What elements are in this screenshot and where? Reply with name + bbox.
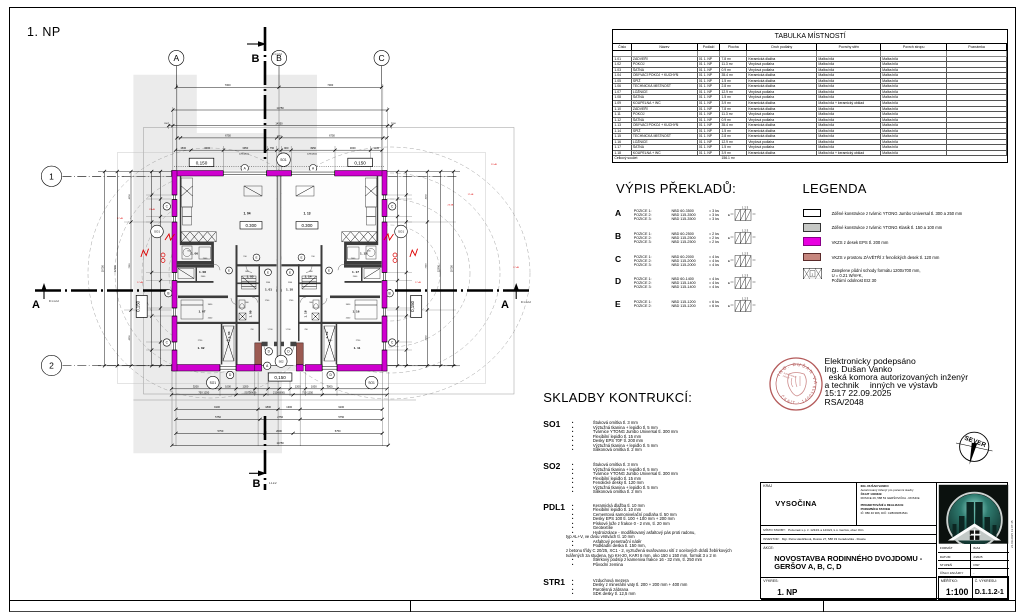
svg-text:1 2 3: 1 2 3 bbox=[742, 296, 749, 300]
svg-text:2: 2 bbox=[49, 361, 54, 371]
svg-text:1800: 1800 bbox=[265, 405, 271, 409]
svg-text:0.300: 0.300 bbox=[302, 223, 314, 228]
svg-text:4250: 4250 bbox=[425, 335, 427, 341]
svg-text:750 1250: 750 1250 bbox=[302, 391, 313, 395]
svg-text:A: A bbox=[173, 53, 179, 63]
svg-text:E: E bbox=[728, 259, 730, 263]
svg-text:1200: 1200 bbox=[243, 385, 249, 389]
svg-text:1. 17: 1. 17 bbox=[352, 270, 359, 274]
svg-text:1. 02: 1. 02 bbox=[198, 346, 205, 350]
svg-text:1. 04: 1. 04 bbox=[243, 212, 250, 216]
svg-text:1000: 1000 bbox=[311, 385, 317, 389]
svg-text:A: A bbox=[501, 299, 509, 311]
svg-text:23 dB: 23 dB bbox=[448, 205, 454, 207]
svg-text:17 dB: 17 dB bbox=[117, 218, 123, 220]
svg-text:2000: 2000 bbox=[276, 429, 282, 433]
svg-text:23 dB: 23 dB bbox=[491, 164, 497, 166]
svg-text:10750: 10750 bbox=[449, 264, 453, 272]
svg-text:1. 10: 1. 10 bbox=[286, 288, 293, 292]
svg-text:B: B bbox=[252, 53, 260, 65]
svg-text:E: E bbox=[328, 269, 330, 273]
svg-text:17 dB: 17 dB bbox=[415, 282, 421, 284]
svg-text:E: E bbox=[255, 256, 257, 260]
svg-text:A: A bbox=[32, 299, 40, 311]
svg-text:ČKAIT - 1400339: ČKAIT - 1400339 bbox=[780, 385, 817, 405]
svg-text:4250: 4250 bbox=[129, 335, 131, 341]
svg-text:ING. DUŠAN VANKO: ING. DUŠAN VANKO bbox=[768, 356, 818, 385]
svg-text:D 1.1.2-2: D 1.1.2-2 bbox=[49, 300, 60, 303]
svg-text:4250: 4250 bbox=[129, 194, 131, 200]
svg-text:E: E bbox=[267, 270, 269, 274]
svg-text:3200: 3200 bbox=[327, 385, 333, 389]
svg-text:1. 08: 1. 08 bbox=[199, 270, 206, 274]
svg-text:12300: 12300 bbox=[113, 264, 117, 272]
svg-text:7300: 7300 bbox=[425, 263, 427, 269]
svg-text:E: E bbox=[728, 304, 730, 308]
svg-text:SO1: SO1 bbox=[368, 381, 375, 385]
svg-text:1. 15: 1. 15 bbox=[360, 252, 367, 256]
svg-text:1000: 1000 bbox=[225, 385, 231, 389]
svg-text:0.300: 0.300 bbox=[246, 223, 258, 228]
svg-text:1. 14: 1. 14 bbox=[305, 275, 312, 279]
svg-text:SO1: SO1 bbox=[280, 158, 287, 162]
svg-text:1. 11: 1. 11 bbox=[354, 346, 361, 350]
svg-text:1. 03: 1. 03 bbox=[227, 331, 231, 338]
svg-text:1. 12: 1. 12 bbox=[325, 331, 329, 338]
svg-text:17 dB: 17 dB bbox=[468, 194, 474, 196]
svg-text:6750: 6750 bbox=[329, 134, 335, 138]
svg-text:B: B bbox=[167, 291, 169, 295]
svg-text:5750: 5750 bbox=[215, 415, 221, 419]
svg-text:3950: 3950 bbox=[242, 146, 248, 150]
svg-text:1. 01: 1. 01 bbox=[265, 288, 272, 292]
svg-text:D 1.1.2-2: D 1.1.2-2 bbox=[272, 53, 283, 56]
svg-text:1.1.2-2: 1.1.2-2 bbox=[269, 482, 277, 485]
svg-text:5750: 5750 bbox=[338, 415, 344, 419]
svg-text:5750: 5750 bbox=[335, 429, 341, 433]
svg-text:17 dB: 17 dB bbox=[513, 267, 519, 269]
svg-text:3950: 3950 bbox=[310, 146, 316, 150]
svg-text:17 dB: 17 dB bbox=[137, 282, 143, 284]
svg-text:1. 05: 1. 05 bbox=[247, 275, 254, 279]
svg-text:1200: 1200 bbox=[295, 385, 301, 389]
svg-text:1 2 3: 1 2 3 bbox=[742, 205, 749, 209]
svg-text:5750: 5750 bbox=[218, 429, 224, 433]
svg-text:12300: 12300 bbox=[437, 264, 441, 272]
svg-text:C: C bbox=[379, 53, 385, 63]
svg-text:1. 13: 1. 13 bbox=[303, 212, 310, 216]
svg-text:1. 16: 1. 16 bbox=[353, 310, 360, 314]
svg-text:900: 900 bbox=[284, 146, 289, 150]
svg-text:1. 07: 1. 07 bbox=[199, 310, 206, 314]
svg-text:7300: 7300 bbox=[129, 263, 131, 269]
svg-text:14350: 14350 bbox=[275, 121, 283, 125]
svg-text:1 700: 1 700 bbox=[285, 329, 291, 331]
svg-text:2290(300): 2290(300) bbox=[307, 153, 317, 155]
svg-text:4250: 4250 bbox=[425, 194, 427, 200]
svg-text:0,150: 0,150 bbox=[196, 160, 208, 165]
svg-text:SO1: SO1 bbox=[398, 230, 404, 234]
svg-text:1 2 3: 1 2 3 bbox=[742, 273, 749, 277]
svg-text:9100: 9100 bbox=[338, 405, 344, 409]
svg-text:1500: 1500 bbox=[180, 146, 186, 150]
svg-text:B: B bbox=[253, 478, 261, 490]
svg-text:10750: 10750 bbox=[100, 264, 104, 272]
svg-text:7000: 7000 bbox=[327, 83, 333, 87]
svg-text:750 1250: 750 1250 bbox=[198, 391, 209, 395]
svg-text:1100: 1100 bbox=[373, 146, 379, 150]
svg-text:SO1: SO1 bbox=[210, 381, 217, 385]
svg-text:1. 18: 1. 18 bbox=[304, 310, 308, 317]
svg-text:7000: 7000 bbox=[225, 83, 231, 87]
svg-text:14750: 14750 bbox=[277, 441, 285, 445]
svg-text:23 dB: 23 dB bbox=[149, 209, 155, 211]
svg-text:1 700: 1 700 bbox=[267, 329, 273, 331]
svg-text:14750: 14750 bbox=[277, 106, 285, 110]
svg-text:1. 09: 1. 09 bbox=[249, 310, 253, 317]
svg-text:750: 750 bbox=[270, 146, 275, 150]
svg-text:200: 200 bbox=[392, 123, 396, 125]
svg-text:3200: 3200 bbox=[193, 385, 199, 389]
svg-text:0,150: 0,150 bbox=[136, 300, 141, 312]
svg-text:2100(900): 2100(900) bbox=[245, 391, 257, 395]
svg-text:1 2 3: 1 2 3 bbox=[742, 251, 749, 255]
svg-text:6750: 6750 bbox=[225, 134, 231, 138]
svg-text:1750: 1750 bbox=[277, 136, 283, 138]
svg-text:B: B bbox=[389, 291, 391, 295]
svg-text:1. 06: 1. 06 bbox=[191, 252, 198, 256]
svg-text:1 2 3: 1 2 3 bbox=[742, 228, 749, 232]
svg-text:3000: 3000 bbox=[204, 146, 210, 150]
svg-text:3000: 3000 bbox=[350, 146, 356, 150]
svg-text:1: 1 bbox=[49, 171, 54, 181]
svg-text:S02: S02 bbox=[279, 359, 284, 363]
svg-text:E: E bbox=[228, 269, 230, 273]
svg-text:0,150: 0,150 bbox=[274, 375, 286, 380]
svg-text:0,150: 0,150 bbox=[354, 160, 366, 165]
svg-text:2290(300): 2290(300) bbox=[239, 153, 249, 155]
svg-text:E: E bbox=[728, 213, 730, 217]
svg-text:9100: 9100 bbox=[214, 405, 220, 409]
svg-text:E: E bbox=[728, 281, 730, 285]
svg-text:2100(900): 2100(900) bbox=[273, 391, 285, 395]
svg-text:E: E bbox=[289, 270, 291, 274]
svg-text:2750: 2750 bbox=[277, 415, 283, 419]
svg-text:SO1: SO1 bbox=[154, 230, 160, 234]
svg-text:D 1.1.2-2: D 1.1.2-2 bbox=[521, 301, 532, 304]
svg-text:E: E bbox=[300, 256, 302, 260]
svg-text:E: E bbox=[728, 236, 730, 240]
svg-text:1300: 1300 bbox=[286, 405, 292, 409]
svg-text:0,150: 0,150 bbox=[410, 300, 415, 312]
